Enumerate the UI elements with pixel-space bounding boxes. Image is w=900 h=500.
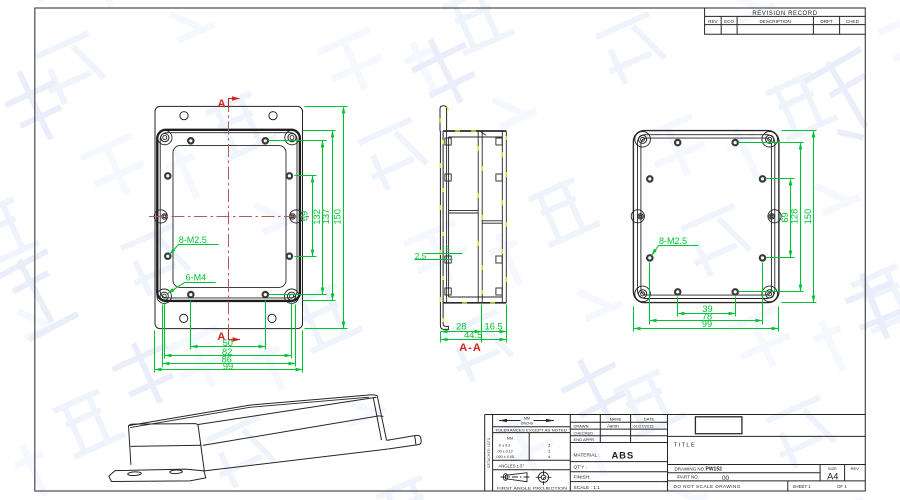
- svg-text:01/27/2015: 01/27/2015: [634, 424, 655, 429]
- svg-text:128: 128: [790, 209, 800, 225]
- svg-text:DESCRIPTION: DESCRIPTION: [759, 19, 790, 24]
- svg-text:QT'Y :: QT'Y :: [574, 465, 587, 471]
- svg-text:2.5: 2.5: [415, 252, 427, 261]
- svg-text:137: 137: [321, 209, 331, 225]
- svg-text:REVISION RECORD: REVISION RECORD: [752, 11, 817, 17]
- svg-text:PW152: PW152: [706, 467, 723, 473]
- svg-text:FINISH:: FINISH:: [574, 475, 591, 481]
- svg-text:DRAWING NO.: DRAWING NO.: [675, 467, 706, 472]
- svg-text:150: 150: [332, 209, 342, 225]
- svg-text:8-M2.5: 8-M2.5: [179, 235, 207, 245]
- svg-text:MM: MM: [507, 437, 513, 441]
- svg-text:99: 99: [702, 319, 712, 329]
- svg-text:.0 ± 0.3: .0 ± 0.3: [498, 443, 510, 447]
- svg-text:150: 150: [803, 209, 813, 225]
- svg-text:ECO: ECO: [724, 19, 734, 24]
- svg-text:GNCHS: GNCHS: [521, 422, 534, 426]
- svg-text:16.5: 16.5: [485, 322, 503, 332]
- svg-text:99: 99: [223, 361, 233, 371]
- svg-text:NAME: NAME: [610, 417, 622, 422]
- svg-text:DRFT: DRFT: [820, 19, 832, 24]
- svg-text:A4: A4: [827, 471, 838, 481]
- svg-text:44.5: 44.5: [464, 330, 482, 340]
- svg-text:ABS: ABS: [612, 450, 634, 461]
- svg-text:CHKD: CHKD: [846, 19, 860, 24]
- svg-text:TITLE: TITLE: [674, 443, 697, 449]
- svg-text:SIZE: SIZE: [828, 466, 837, 471]
- svg-text:REV: REV: [708, 19, 718, 24]
- svg-text:MM: MM: [524, 416, 530, 420]
- svg-text:8-M2.5: 8-M2.5: [659, 236, 687, 246]
- svg-text:DATE: DATE: [644, 417, 655, 422]
- svg-text:Aaron: Aaron: [607, 424, 619, 429]
- svg-text:DRAWN: DRAWN: [574, 424, 589, 429]
- svg-text:6-M4: 6-M4: [186, 273, 207, 283]
- svg-text:ENG APPR: ENG APPR: [574, 437, 595, 442]
- svg-text:MATERIAL :: MATERIAL :: [574, 453, 600, 459]
- svg-text:ANGLES ± 5°: ANGLES ± 5°: [499, 463, 525, 468]
- svg-text:A: A: [218, 98, 226, 110]
- svg-text:OF 1: OF 1: [837, 484, 847, 489]
- svg-text:SCALE : 1:1: SCALE : 1:1: [574, 485, 601, 491]
- svg-text:DETACHED LOTS: DETACHED LOTS: [487, 438, 491, 468]
- svg-text:CHECKED: CHECKED: [574, 430, 594, 435]
- svg-text:DO NOT SCALE DRAWING: DO NOT SCALE DRAWING: [674, 484, 741, 489]
- svg-text:5: 5: [445, 245, 450, 254]
- svg-text:SHEET 1: SHEET 1: [793, 484, 812, 489]
- svg-text:FIRST ANGLE PROJECTION: FIRST ANGLE PROJECTION: [497, 485, 567, 490]
- svg-text:69: 69: [780, 212, 790, 222]
- svg-text:69: 69: [300, 211, 310, 221]
- svg-text:.00 ± 0.12: .00 ± 0.12: [497, 449, 513, 453]
- svg-text:REV: REV: [851, 466, 860, 471]
- svg-text:/PART NO.: /PART NO.: [677, 475, 699, 480]
- svg-text:A-A: A-A: [459, 342, 482, 354]
- svg-text:00: 00: [722, 475, 730, 482]
- svg-text:TOLERANCES EXCEPT AS NOTED: TOLERANCES EXCEPT AS NOTED: [495, 428, 567, 432]
- svg-text:.000 ± 0.05: .000 ± 0.05: [496, 455, 514, 459]
